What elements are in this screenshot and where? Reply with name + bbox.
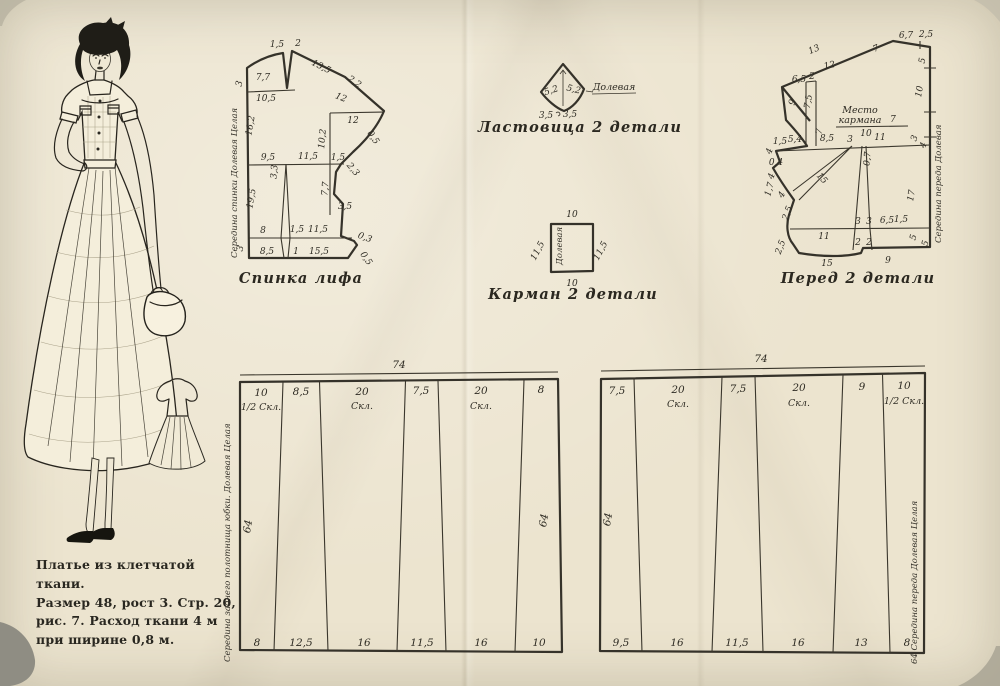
dim-label: 2,3 (343, 160, 361, 178)
dim-label: 4 (776, 190, 788, 201)
dim-label: 2 (808, 72, 815, 82)
dim-label: 19,5 (245, 188, 258, 210)
dim-label: 16 (791, 637, 805, 649)
dim-label: 10,2 (317, 128, 329, 149)
dim-label: 20 (670, 384, 685, 396)
dim-label: 2,5 (774, 239, 789, 257)
dim-label: 20 (354, 386, 369, 398)
belt (84, 160, 116, 168)
caption-line: Размер 48, рост 3. Стр. 20, (36, 594, 236, 613)
dim-label: 7,7 (320, 181, 331, 196)
dim-label: 16,2 (244, 115, 257, 137)
dim-label: 7 (890, 115, 896, 125)
dim-label: 64 (601, 512, 615, 527)
dim-label: 8,5 (820, 134, 835, 144)
dim-label: 9 (885, 256, 891, 266)
dim-label: 3 (855, 217, 861, 227)
dim-label: 5 (918, 57, 929, 65)
dim-label: 7,5 (609, 385, 626, 397)
dim-label: 3,5 (338, 202, 353, 212)
caption-line: при ширине 0,8 м. (36, 631, 236, 650)
dim-label: 11,5 (308, 225, 328, 235)
bottom-right-shadow (958, 646, 1000, 686)
dim-label: 13 (807, 43, 822, 57)
handbag (144, 292, 185, 336)
dim-label: 10 (860, 129, 872, 139)
dim-label: 4 (918, 141, 930, 151)
dim-label: 1,7 (763, 181, 776, 198)
dim-label: 0,5 (357, 250, 374, 268)
dim-label: 8 (538, 384, 545, 396)
dim-label: 5 (908, 233, 919, 241)
pleat-note: Скл. (351, 401, 373, 412)
dim-label: 11,5 (529, 240, 547, 263)
skirt-front-panel: 74 7,5 20 7,5 20 9 10 Скл. Скл. 1/2 Скл.… (600, 353, 925, 664)
dim-label: 3 (866, 217, 872, 227)
pattern-sheet: 1,5 2 7,7 3 13,5 2,2 10,5 12 12 16,2 10,… (0, 0, 1000, 686)
dim-label: 12 (347, 116, 359, 126)
dim-label: 2,5 (781, 205, 796, 223)
dim-label: 11 (874, 133, 885, 143)
dim-label: 1,5 (331, 153, 346, 163)
dim-label: 9 (859, 381, 866, 393)
dim-label: 12 (823, 60, 837, 72)
dim-label: 0,4 (769, 158, 784, 168)
dim-label: 17 (906, 189, 918, 202)
dim-label: 10 (254, 387, 268, 399)
grain-text: Середина спинки Долевая Целая (230, 107, 240, 258)
dim-label: 10 (897, 380, 911, 392)
dim-label: 2,5 (918, 30, 934, 40)
dim-label: 1,5 (270, 40, 285, 50)
grain-text: Середина переда Долевая (934, 124, 944, 243)
dim-label: 7,5 (413, 385, 430, 397)
dim-label: 2 (854, 238, 861, 248)
dim-label: 64 (537, 513, 551, 528)
dim-label: 16 (474, 637, 488, 649)
back-bodice-internal-lines (247, 90, 383, 238)
pleat-note: 1/2 Скл. (241, 402, 281, 413)
dim-label: 5,2 (565, 83, 582, 96)
left-arm (54, 119, 86, 171)
dim-label: 7,7 (256, 73, 271, 83)
bottom-left-shadow (0, 622, 35, 686)
pleat-note: Скл. (788, 398, 810, 409)
piece-caption: Перед 2 детали (780, 270, 936, 287)
back-bodice-piece: 1,5 2 7,7 3 13,5 2,2 10,5 12 12 16,2 10,… (230, 39, 384, 287)
dim-label: 6,7 (899, 31, 914, 41)
piece-caption: Ластовица 2 детали (477, 119, 682, 136)
pleat-note: 1/2 Скл. (884, 396, 924, 407)
dim-label: 3 (235, 80, 246, 88)
dim-label: 8 (260, 226, 266, 236)
dim-label: 6,5 (880, 216, 895, 226)
dim-label: 16 (357, 637, 371, 649)
dim-label: 0,3 (356, 231, 373, 245)
dim-label: 13 (854, 637, 868, 649)
back-bodice-waist-dart (281, 164, 290, 258)
dim-label: 3,3 (269, 164, 280, 179)
panel-outline (600, 373, 925, 653)
dim-label: 8,5 (293, 386, 310, 398)
dim-label: 9,5 (613, 637, 630, 649)
dim-label: 10,5 (256, 94, 276, 104)
dim-label: 64 (241, 519, 255, 534)
pocket-piece: 10 11,5 11,5 10 Долевая Карман 2 детали (487, 210, 658, 303)
dim-label: 5,4 (788, 135, 803, 145)
dim-label: 12,5 (289, 637, 313, 649)
dim-label: 6,5 (792, 75, 807, 85)
dim-label: 11,5 (298, 152, 318, 162)
top-dimension-line (601, 366, 925, 371)
grain-label: Долевая (592, 82, 636, 93)
dim-label: 11,5 (410, 637, 434, 649)
dim-label: 0,5 (364, 129, 381, 147)
dim-label: 8 (254, 637, 261, 649)
piece-caption: Спинка лифа (239, 270, 363, 287)
fashion-figure (24, 17, 205, 543)
dim-label: 74 (754, 353, 767, 365)
piece-caption: Карман 2 детали (487, 286, 658, 303)
dim-label: 2,2 (345, 74, 364, 91)
dim-label: 1 (293, 247, 299, 257)
dim-label: 13,5 (310, 58, 333, 76)
dim-label: 2 (865, 238, 872, 248)
dim-label: 0,7 (862, 151, 873, 166)
pleat-separators (274, 380, 524, 652)
grain-underline (592, 93, 636, 94)
dim-label: 8,5 (260, 247, 275, 257)
dim-label: 1,5 (290, 225, 305, 235)
dim-label: 7,5 (803, 93, 815, 109)
dim-label: 3 (909, 134, 920, 143)
grain-text: 64 Середина переда Долевая Целая (910, 500, 920, 664)
dim-label: 12 (334, 91, 349, 105)
caption-line: Платье из клетчатой ткани. (36, 556, 236, 594)
top-left-shadow (0, 0, 26, 26)
dim-label: 4 (764, 147, 776, 157)
dim-label: 15 (821, 259, 833, 269)
top-right-shadow (974, 0, 1000, 22)
skirt-back-panel: 74 10 8,5 20 7,5 20 8 1/2 Скл. Скл. Скл.… (222, 359, 562, 662)
dim-label: 1,5 (773, 137, 788, 147)
dim-label: 3 (847, 135, 853, 145)
pleat-note: Скл. (470, 401, 492, 412)
dim-label: 10 (532, 637, 546, 649)
pocket-place-label: кармана (839, 115, 882, 126)
caption-block: Платье из клетчатой ткани. Размер 48, ро… (36, 556, 236, 650)
dim-label: 15,5 (309, 247, 329, 257)
dim-label: 20 (791, 382, 806, 394)
dim-label: 1,5 (894, 215, 909, 225)
dim-label: 7 (872, 43, 881, 55)
dim-label: 10 (566, 210, 578, 220)
dim-label: 11 (818, 232, 829, 242)
pleat-separators (634, 374, 890, 653)
dim-label: 7,5 (730, 383, 747, 395)
dim-label: 2 (294, 39, 301, 49)
dim-label: 9,5 (261, 153, 276, 163)
dim-label: 20 (473, 385, 488, 397)
gusset-piece: 5,2 5,2 3,5 3,5 Долевая Ластовица 2 дета… (477, 64, 682, 136)
pleat-note: Скл. (667, 399, 689, 410)
dim-label: 16 (670, 637, 684, 649)
dim-label: 11,5 (592, 240, 610, 263)
front-piece: 13 7 12 6,5 2 9 7,5 6,7 2,5 5 10 7 7 10 … (763, 30, 944, 287)
dim-label: 10 (914, 85, 926, 98)
dim-label: 74 (392, 359, 405, 371)
neck (95, 71, 104, 80)
top-dimension-line (240, 372, 558, 375)
caption-line: рис. 7. Расход ткани 4 м (36, 612, 236, 631)
dim-label: 11,5 (725, 637, 749, 649)
grain-label: Долевая (555, 227, 565, 266)
